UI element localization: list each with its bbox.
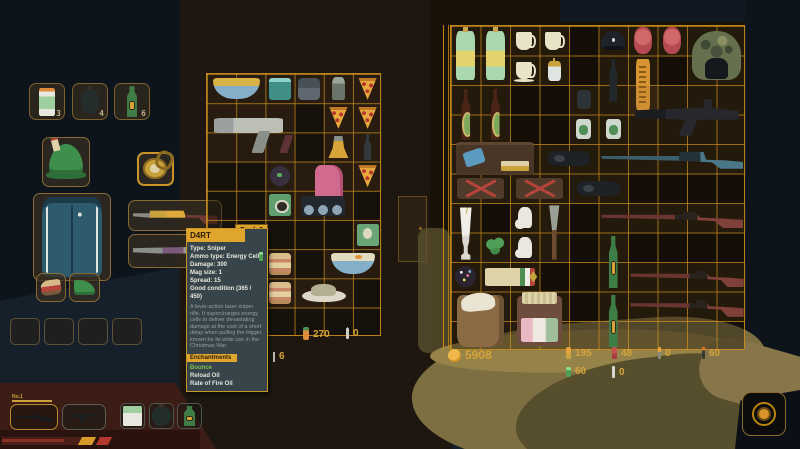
soup-bowl-item[interactable]	[324, 249, 382, 278]
sneaker-icon	[40, 279, 62, 297]
smg-icon	[635, 93, 739, 136]
beer-bottle-item[interactable]	[451, 85, 481, 144]
chisel-icon	[547, 205, 561, 259]
tooltip-body: D4RT Type: SniperAmmo type: Energy CellD…	[186, 228, 268, 392]
counter: 270	[303, 327, 330, 340]
police-cap-item[interactable]	[599, 26, 629, 56]
teal-sniper-rifle-icon	[601, 149, 743, 169]
lever-rifle-item[interactable]	[628, 292, 746, 322]
molotov-icon	[606, 236, 621, 288]
tooltip-stat: Damage: 300	[190, 261, 264, 269]
tool-kit-icon	[516, 178, 563, 199]
milkshake-item[interactable]	[451, 203, 481, 262]
chisel-item[interactable]	[540, 203, 570, 262]
pizza-slice-icon	[357, 107, 379, 129]
meat-slab-icon	[634, 27, 652, 54]
hotbar-slot-3[interactable]	[120, 403, 145, 429]
tool-kit-item[interactable]	[510, 174, 569, 204]
track-jacket-icon	[42, 197, 103, 276]
meat-slab-item[interactable]	[628, 26, 658, 56]
accessory-slot[interactable]	[78, 318, 108, 345]
tooltip-stat: Good condition (365 / 450)	[190, 285, 264, 301]
beer-bottle-icon	[458, 89, 473, 141]
energy-cell-icon	[566, 367, 571, 377]
cup-and-saucer-icon	[516, 62, 532, 79]
coin-icon	[448, 349, 461, 362]
pickle-jar-icon	[606, 119, 621, 139]
sock-icon	[518, 207, 532, 228]
pizza-slice-item[interactable]	[353, 103, 382, 132]
sandwich-item[interactable]	[265, 249, 294, 278]
pasta-pack-icon	[485, 268, 535, 286]
stamina-segment	[96, 437, 112, 445]
pocket-watch-icon	[143, 158, 167, 180]
roller-skate-item[interactable]	[295, 162, 353, 220]
container-grid[interactable]	[450, 25, 745, 350]
background-hand	[418, 228, 450, 353]
counter-value: 0	[619, 367, 625, 378]
counter-value: 60	[575, 366, 586, 377]
toolbox-item[interactable]	[451, 144, 540, 174]
enchantment: Reload Oil	[190, 372, 264, 380]
beer-bottle-icon	[488, 89, 503, 141]
honey-jar-icon	[548, 61, 561, 82]
flashlight-icon	[332, 77, 345, 100]
enchantments-header: Enchantments	[187, 354, 237, 362]
counter-value: 48	[621, 348, 632, 359]
shoe-slot-left[interactable]	[36, 273, 66, 302]
hotbar-slot-5[interactable]	[177, 403, 202, 429]
bell-icon	[327, 136, 349, 158]
counter: 0	[658, 347, 671, 359]
pouch-item[interactable]	[295, 74, 324, 103]
ration-box-icon	[357, 224, 379, 246]
tooltip-stats: Type: SniperAmmo type: Energy CellDamage…	[187, 242, 267, 301]
rifle-icon	[16, 410, 53, 423]
scope-item[interactable]	[540, 144, 599, 174]
settings-button[interactable]	[742, 392, 786, 436]
grid-edge-line	[443, 25, 449, 349]
accessory-slot[interactable]	[10, 318, 40, 345]
pickle-jar-item[interactable]	[599, 115, 629, 145]
combat-helmet-icon	[692, 31, 742, 81]
quick-slot-energy-drink[interactable]: 3	[29, 83, 65, 120]
flask-item[interactable]	[569, 85, 599, 115]
pizza-slice-item[interactable]	[353, 74, 382, 103]
hotbar-primary-weapon[interactable]	[10, 404, 58, 430]
lever-rifle-item[interactable]	[628, 262, 746, 292]
ration-box-item[interactable]	[353, 220, 382, 249]
meat-slab-item[interactable]	[658, 26, 688, 56]
counter-value: 5908	[465, 348, 492, 362]
sandwich-icon	[269, 253, 291, 275]
scope-item[interactable]	[569, 174, 628, 204]
gear-icon	[757, 407, 771, 421]
game-screen: 346 Rank 3 D4RT Type: SniperAmmo type: E…	[0, 0, 800, 449]
enchantment: Rate of Fire Oil	[190, 380, 264, 388]
counter: 0	[612, 366, 625, 378]
bomb-item[interactable]	[265, 162, 294, 191]
tooltip-title: D4RT	[187, 229, 245, 242]
pizza-slice-icon	[357, 165, 379, 187]
food-jar-item[interactable]	[510, 292, 569, 351]
dark-bottle-item[interactable]	[599, 56, 629, 115]
tooltip-stat: Ammo type: Energy Cell	[190, 253, 264, 261]
food-jar-icon	[517, 296, 562, 346]
flask-icon	[577, 90, 591, 109]
counter: 195	[566, 347, 592, 359]
counter-value: 6	[279, 351, 285, 362]
lever-rifle-item[interactable]	[599, 203, 747, 233]
sock-item[interactable]	[510, 233, 540, 263]
tooltip-stat: Type: Sniper	[190, 245, 264, 253]
cup-and-saucer-item[interactable]	[510, 56, 540, 86]
quick-slot-grenade[interactable]: 4	[72, 83, 108, 120]
honey-jar-item[interactable]	[540, 56, 570, 86]
background-door	[398, 196, 427, 262]
grenade-icon	[81, 89, 99, 114]
sock-icon	[518, 237, 532, 258]
dish-soap-icon	[456, 31, 475, 81]
cookie-item[interactable]	[451, 262, 481, 292]
molotov-icon	[606, 295, 621, 347]
cigarette-pack-icon	[123, 406, 142, 426]
tooltip-description: A lever-action laser sniper rifle. It su…	[187, 301, 267, 354]
enchantment: Bounce	[190, 364, 264, 372]
pizza-slice-item[interactable]	[353, 162, 382, 191]
hotbar-secondary-weapon[interactable]	[62, 404, 106, 430]
counter-value: 0	[665, 348, 671, 359]
body-slot[interactable]	[33, 193, 111, 281]
teacup-item[interactable]	[540, 26, 570, 56]
energy-cell-icon	[259, 252, 263, 261]
flour-sack-icon	[457, 295, 504, 347]
quick-slot-molotov[interactable]: 6	[114, 83, 150, 120]
canned-drink-item[interactable]	[265, 74, 294, 103]
durability-bar	[12, 400, 52, 402]
tooltip-stat: Spread: 15	[190, 277, 264, 285]
green-kit-item[interactable]	[265, 191, 294, 220]
meat-slab-icon	[663, 27, 681, 54]
sock-item[interactable]	[510, 203, 540, 233]
rice-plate-icon	[302, 290, 346, 302]
green-kit-icon	[269, 194, 291, 216]
teacup-icon	[516, 32, 532, 49]
pizza-slice-item[interactable]	[324, 103, 353, 132]
health-bar	[2, 437, 122, 446]
grey-pistol-icon	[214, 111, 288, 153]
accessory-slot[interactable]	[112, 318, 142, 345]
teal-sniper-rifle-item[interactable]	[599, 144, 747, 174]
stamina-segment	[78, 437, 96, 445]
counter: 5908	[448, 348, 492, 362]
grenade-icon	[152, 406, 171, 426]
bowl-of-chips-icon	[213, 78, 260, 99]
rice-plate-item[interactable]	[295, 278, 353, 307]
wine-bottle-icon	[362, 134, 374, 160]
molotov-icon	[180, 406, 199, 426]
teacup-icon	[545, 32, 561, 49]
stack-count: 3	[56, 109, 61, 118]
counter: 6	[273, 351, 285, 362]
counter: 48	[612, 347, 632, 359]
counter-value: 60	[709, 348, 720, 359]
stack-count: 6	[141, 109, 146, 118]
lever-rifle-icon	[630, 266, 743, 287]
accessory-slot[interactable]	[44, 318, 74, 345]
tool-kit-item[interactable]	[451, 174, 510, 204]
counter: 0	[346, 328, 359, 339]
counter: 60	[566, 366, 586, 377]
pizza-slice-icon	[327, 107, 349, 129]
counter-value: 195	[575, 348, 592, 359]
bomb-icon	[270, 166, 290, 186]
sandwich-icon	[269, 282, 291, 304]
clover-icon	[485, 237, 506, 258]
canned-drink-icon	[269, 78, 291, 100]
toolbox-icon	[456, 142, 534, 175]
milkshake-icon	[457, 205, 474, 259]
scope-icon	[548, 151, 591, 166]
cookie-icon	[455, 266, 476, 287]
background-shape	[560, 0, 800, 22]
dish-soap-item[interactable]	[451, 26, 481, 85]
syringe-icon	[346, 328, 349, 339]
lever-rifle-icon	[630, 296, 743, 317]
counter-value: 270	[313, 329, 330, 340]
white-bullet-icon	[612, 366, 615, 378]
revolver-icon	[69, 411, 99, 424]
background-shape	[745, 0, 800, 449]
pepper-spray-icon	[303, 327, 309, 340]
health-bar-fill	[2, 439, 64, 442]
scope-icon	[577, 181, 620, 196]
head-slot[interactable]	[42, 137, 90, 187]
red-bullet-icon	[612, 347, 617, 359]
energy-drink-icon	[39, 88, 55, 116]
police-cap-icon	[601, 31, 625, 49]
counter: 60	[702, 347, 720, 359]
clover-item[interactable]	[481, 233, 511, 263]
molotov-item[interactable]	[599, 233, 629, 292]
hotbar: No.1	[0, 390, 260, 440]
pickle-jar-icon	[576, 119, 591, 139]
tool-kit-icon	[457, 178, 504, 199]
grey-pistol-item[interactable]	[207, 103, 295, 161]
watch-slot[interactable]	[137, 152, 174, 186]
bell-item[interactable]	[324, 132, 353, 161]
green-cap-icon	[49, 144, 84, 175]
hotbar-slot-4[interactable]	[149, 403, 174, 429]
enchantments-list: BounceReload OilRate of Fire Oil	[187, 362, 267, 391]
wine-bottle-item[interactable]	[353, 132, 382, 161]
lever-rifle-icon	[601, 207, 743, 228]
flashlight-item[interactable]	[324, 74, 353, 103]
dish-soap-icon	[486, 31, 505, 81]
pizza-slice-icon	[357, 78, 379, 100]
pouch-icon	[298, 78, 320, 100]
molotov-icon	[123, 86, 141, 117]
bowl-of-chips-item[interactable]	[207, 74, 265, 103]
dish-soap-item[interactable]	[481, 26, 511, 85]
shoe-slot-right[interactable]	[69, 273, 100, 302]
yellow-rifle-icon	[133, 206, 218, 225]
combat-helmet-item[interactable]	[687, 26, 746, 85]
roller-skate-icon	[298, 165, 349, 216]
flour-sack-item[interactable]	[451, 292, 510, 351]
needle-icon	[273, 352, 275, 362]
sandwich-item[interactable]	[265, 278, 294, 307]
smg-item[interactable]	[628, 85, 746, 144]
counter-value: 0	[353, 328, 359, 339]
elf-shoe-icon	[74, 280, 95, 295]
teacup-item[interactable]	[510, 26, 540, 56]
stack-count: 4	[99, 109, 104, 118]
pickle-jar-item[interactable]	[569, 115, 599, 145]
molotov-item[interactable]	[599, 292, 629, 351]
soup-bowl-icon	[331, 253, 375, 274]
bullet-icon	[566, 347, 571, 359]
dark-bottle-icon	[607, 59, 619, 102]
beer-bottle-item[interactable]	[481, 85, 511, 144]
pasta-pack-item[interactable]	[481, 262, 540, 292]
dark-bullet-icon	[702, 347, 705, 359]
slim-bullet-icon	[658, 347, 661, 359]
tooltip-stat: Mag size: 1	[190, 269, 264, 277]
